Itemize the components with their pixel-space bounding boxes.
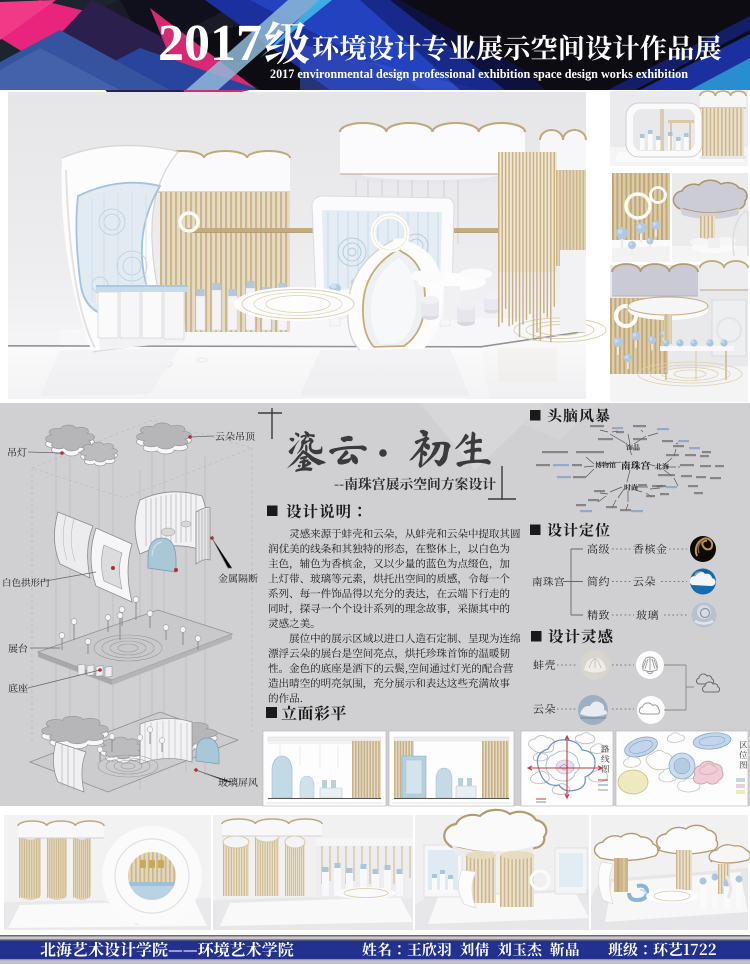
- svg-text:2017: 2017: [158, 15, 262, 72]
- svg-text:2017 environmental design prof: 2017 environmental design professional e…: [270, 67, 688, 81]
